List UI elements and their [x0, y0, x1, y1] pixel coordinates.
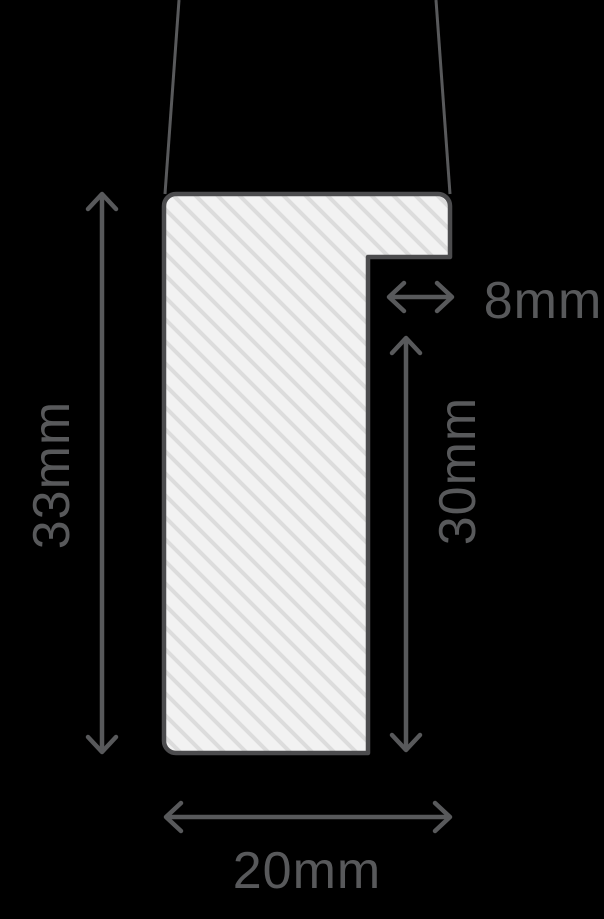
perspective-line-left	[165, 0, 179, 194]
dimension-overall-width	[166, 803, 450, 831]
dimension-label-overall-height: 33mm	[23, 401, 81, 549]
moulding-diagram-svg: 33mm 8mm 30mm 20mm	[0, 0, 604, 919]
dimension-label-overall-width: 20mm	[233, 842, 381, 900]
dimension-rebate-height	[392, 338, 420, 750]
dimension-label-rebate-width: 8mm	[484, 272, 603, 330]
dimension-overall-height	[88, 194, 116, 752]
moulding-diagram: 33mm 8mm 30mm 20mm	[0, 0, 604, 919]
perspective-line-right	[436, 0, 450, 194]
dimension-rebate-width	[389, 283, 452, 311]
frame-perspective-lines	[165, 0, 450, 194]
dimension-label-rebate-height: 30mm	[429, 397, 487, 545]
